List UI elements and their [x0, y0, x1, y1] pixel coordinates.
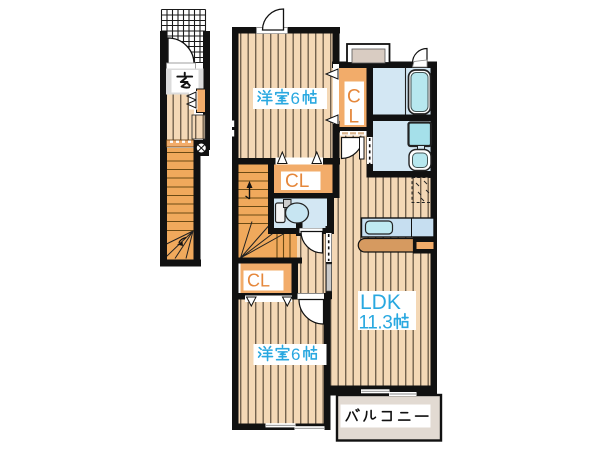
- svg-text:CL: CL: [247, 271, 270, 291]
- svg-text:CL: CL: [285, 171, 309, 192]
- svg-text:11.3: 11.3: [359, 313, 393, 334]
- svg-text:LDK: LDK: [360, 291, 401, 314]
- svg-text:6: 6: [291, 89, 300, 108]
- svg-text:6: 6: [291, 345, 300, 364]
- svg-text:L: L: [349, 107, 360, 128]
- svg-text:C: C: [347, 87, 361, 108]
